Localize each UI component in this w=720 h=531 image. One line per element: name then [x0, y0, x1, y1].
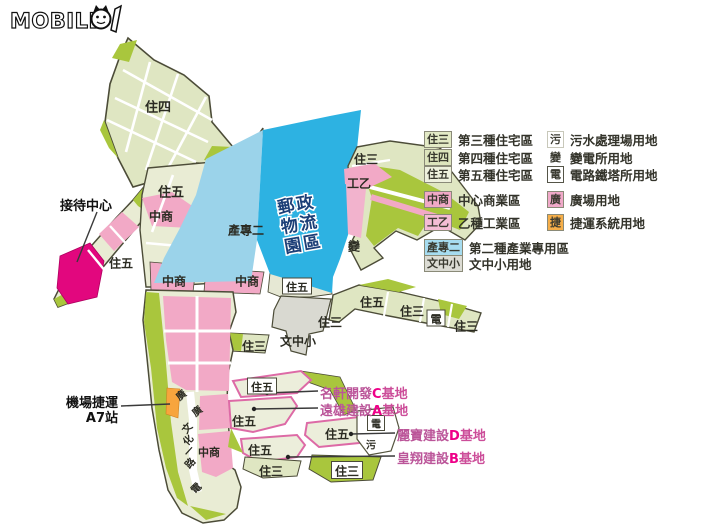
zone-label: 住三 [400, 303, 424, 318]
zone-label: 住五 [325, 426, 349, 441]
zone-label: 住五 [248, 442, 272, 457]
callout-reception-center: 接待中心 [60, 195, 112, 214]
zone-label: 住三 [354, 151, 378, 166]
zone-label: 中商 [149, 208, 173, 223]
legend-item: 變變電所用地 [547, 149, 633, 166]
legend-label: 廣場用地 [570, 190, 620, 209]
legend-swatch: 住五 [424, 166, 452, 183]
legend-label: 電路鐵塔所用地 [570, 165, 658, 184]
logo-word: MOBILE [10, 9, 103, 33]
legend-swatch: 產專二 [424, 239, 463, 256]
callout-airport-mrt-a7: 機場捷運 A7站 [48, 396, 118, 426]
legend-swatch: 捷 [547, 214, 564, 231]
legend-swatch: 廣 [547, 191, 564, 208]
zone-label: 住三 [318, 314, 342, 329]
legend-swatch: 污 [547, 131, 564, 148]
legend-item: 住五第五種住宅區 [424, 166, 533, 183]
legend-label: 文中小用地 [469, 254, 532, 273]
legend-item: 文中小文中小用地 [424, 255, 532, 272]
zone-label: 住五 [286, 280, 308, 294]
legend-item: 住三第三種住宅區 [424, 131, 533, 148]
zone-label: 住三 [259, 463, 283, 478]
site-letter: B [449, 452, 459, 467]
zone-label: 中商 [198, 445, 220, 459]
legend-swatch: 電 [547, 166, 564, 183]
zone-label: 中商 [235, 273, 259, 288]
site-suffix: 基地 [460, 429, 486, 444]
zone-label: 住五 [360, 294, 384, 309]
legend-swatch: 住三 [424, 131, 452, 148]
legend-swatch: 文中小 [424, 255, 463, 272]
legend-item: 捷捷運系統用地 [547, 214, 645, 231]
legend-item: 污污水處理場用地 [547, 131, 658, 148]
legend-swatch: 工乙 [424, 214, 452, 231]
forum-map-screenshot: 郵政物流園區 住四住五中商住五中商產專二中商住五住三工乙變住五住三電住三住三文中… [0, 0, 720, 531]
zone-label: 文中小 [280, 333, 316, 348]
legend-item: 中商中心商業區 [424, 191, 521, 208]
site-suffix: 基地 [459, 452, 485, 467]
callout-site-a: 遠雄建設A基地 [320, 400, 408, 419]
leader-site-a [254, 408, 318, 409]
legend-label: 捷運系統用地 [570, 213, 645, 232]
site-company: 皇翔建設 [397, 452, 449, 467]
leader-site-d [351, 433, 395, 434]
site-letter: A [372, 404, 382, 419]
zone-label: 產專二 [227, 222, 264, 237]
zone-label: 變 [347, 238, 361, 253]
legend-item: 電電路鐵塔所用地 [547, 166, 658, 183]
legend-item: 工乙乙種工業區 [424, 214, 521, 231]
zone-label: 工乙 [347, 176, 371, 190]
site-company: 遠雄建設 [320, 404, 372, 419]
callout-airport-mrt-line1: 機場捷運 [48, 396, 118, 411]
callout-site-b: 皇翔建設B基地 [397, 448, 485, 467]
callout-site-d: 麗寶建設D基地 [397, 425, 486, 444]
legend-label: 乙種工業區 [458, 213, 521, 232]
zone-label: 中商 [162, 273, 186, 288]
zone-label: 住四 [145, 100, 171, 116]
zone-label: 住三 [242, 338, 266, 353]
site-letter: D [449, 429, 460, 444]
mobile01-logo: MOBILE [10, 5, 121, 33]
legend-label: 中心商業區 [458, 190, 521, 209]
leader-site-b [288, 456, 395, 457]
logo-one [111, 6, 121, 32]
zone-label: 住五 [251, 380, 273, 394]
site-company: 麗寶建設 [397, 429, 449, 444]
zone-label: 住三 [454, 318, 478, 333]
zone-label: 住五 [109, 255, 133, 270]
legend-label: 污水處理場用地 [570, 130, 658, 149]
legend-item: 住四第四種住宅區 [424, 149, 533, 166]
zone-label: 電 [431, 313, 442, 326]
zone-label: 電 [371, 419, 381, 431]
site-suffix: 基地 [382, 404, 408, 419]
legend-swatch: 中商 [424, 191, 452, 208]
zone-label: 住五 [232, 413, 256, 428]
legend-label: 第五種住宅區 [458, 165, 533, 184]
zoning-map: 郵政物流園區 住四住五中商住五中商產專二中商住五住三工乙變住五住三電住三住三文中… [0, 0, 720, 531]
legend-swatch: 變 [547, 149, 564, 166]
callout-airport-mrt-line2: A7站 [48, 411, 118, 426]
zone-label: 污 [366, 439, 376, 452]
legend-swatch: 住四 [424, 149, 452, 166]
zone-label: 住五 [158, 185, 184, 201]
legend-label: 第三種住宅區 [458, 130, 533, 149]
zone-label: 住三 [335, 463, 359, 478]
legend-item: 廣廣場用地 [547, 191, 620, 208]
